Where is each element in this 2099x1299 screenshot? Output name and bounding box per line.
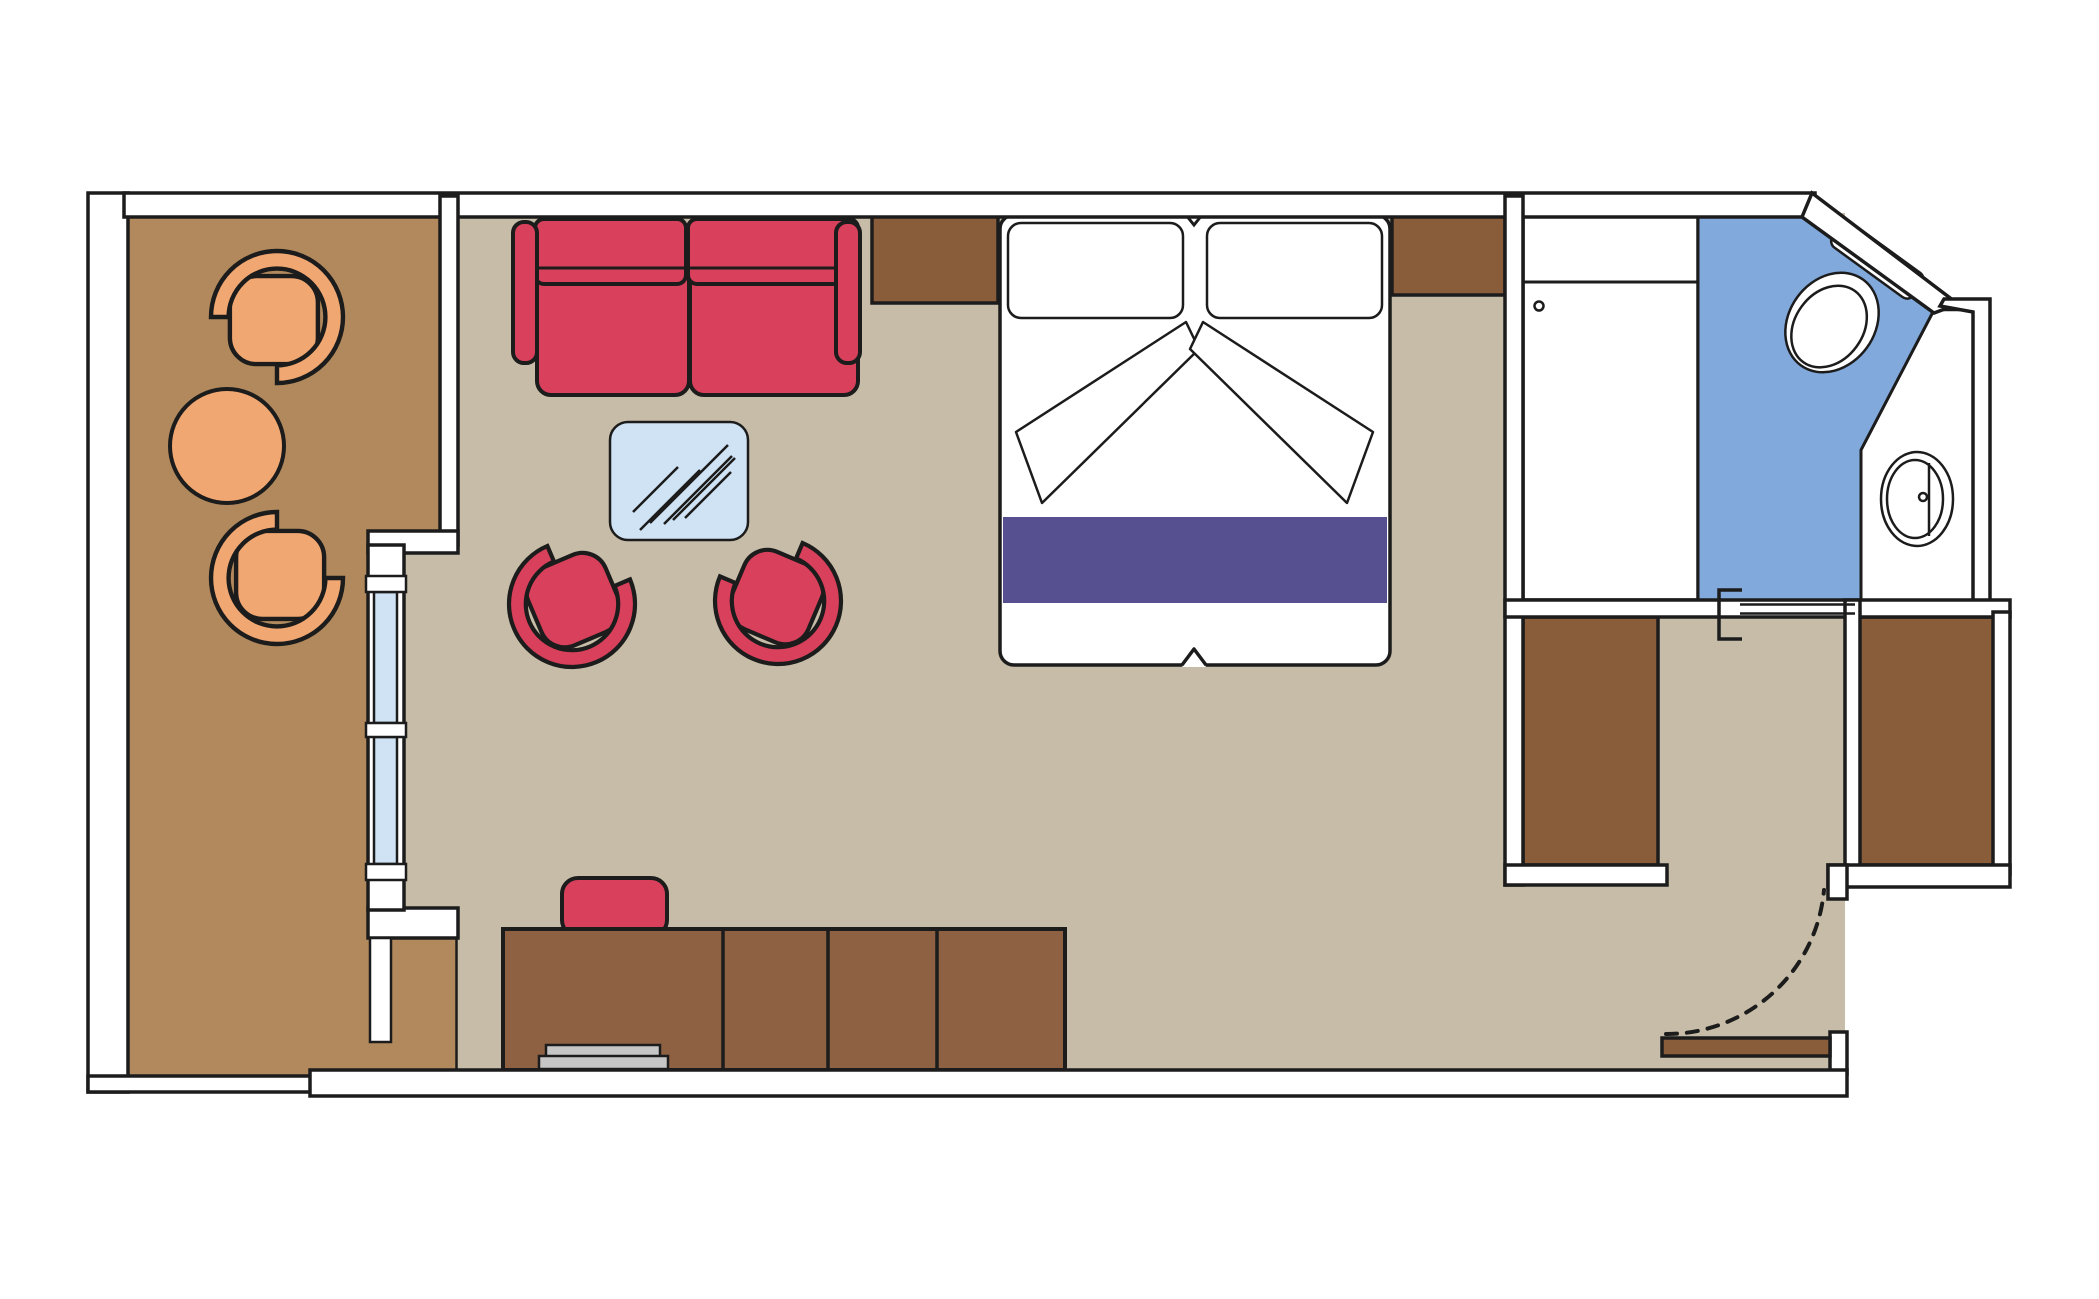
wardrobe-right-bottom-wall bbox=[1828, 865, 2010, 887]
balcony-window-pane-bottom bbox=[374, 737, 397, 864]
sink bbox=[1881, 452, 1953, 546]
outer-wall-bottom bbox=[310, 1070, 1847, 1096]
wardrobe-left-bottom-wall bbox=[1505, 865, 1667, 885]
balcony-window-pane-top bbox=[374, 592, 397, 723]
shower-door-knob bbox=[1535, 302, 1544, 311]
sofa-back-cushion-left bbox=[535, 219, 686, 284]
sofa-back-cushion-right bbox=[688, 219, 858, 284]
balcony-window-frame-top bbox=[366, 576, 406, 592]
sofa-armrest-right bbox=[836, 222, 860, 363]
outer-wall-left bbox=[88, 193, 128, 1092]
coffee-table bbox=[610, 422, 748, 540]
balcony-bottom-wall bbox=[88, 1076, 318, 1092]
desk-shelf-lower bbox=[539, 1056, 668, 1069]
wall-cabinet-right-of-bed bbox=[1392, 211, 1505, 295]
balcony-round-table bbox=[170, 389, 284, 503]
balcony-sliding-door-panel bbox=[370, 938, 391, 1042]
wardrobe-right bbox=[1857, 617, 1995, 865]
sink-drain bbox=[1919, 493, 1927, 501]
balcony-window-frame-middle bbox=[366, 723, 406, 737]
outer-wall-top bbox=[124, 193, 1815, 217]
bed-runner bbox=[1003, 517, 1387, 603]
bathroom-left-wall bbox=[1505, 196, 1523, 885]
desk-and-cabinet-row bbox=[503, 929, 1065, 1070]
floor-plan bbox=[0, 0, 2099, 1299]
balcony-window-frame-bottom bbox=[366, 864, 406, 880]
balcony-partition-upper bbox=[440, 196, 458, 545]
shower-closet-area bbox=[1523, 215, 1698, 600]
corridor-right-wall bbox=[1845, 600, 1860, 870]
entry-door-jamb bbox=[1830, 1032, 1847, 1074]
entry-wall-step bbox=[1828, 865, 1847, 899]
sofa bbox=[513, 219, 860, 395]
bed-pillow-left bbox=[1008, 223, 1183, 318]
entry-door-leaf bbox=[1662, 1038, 1830, 1056]
double-bed bbox=[1000, 214, 1390, 667]
floor-plan-page bbox=[0, 0, 2099, 1299]
bed-pillow-right bbox=[1207, 223, 1382, 318]
outer-wall-right-lower bbox=[1993, 612, 2010, 874]
wardrobe-left bbox=[1523, 617, 1658, 865]
balcony-partition-jog-bottom bbox=[368, 908, 458, 938]
sink-basin-inner bbox=[1887, 460, 1943, 538]
sofa-armrest-left bbox=[513, 222, 537, 363]
wall-cabinet-left-of-bed bbox=[872, 215, 998, 303]
coffee-table-glass-top bbox=[610, 422, 748, 540]
